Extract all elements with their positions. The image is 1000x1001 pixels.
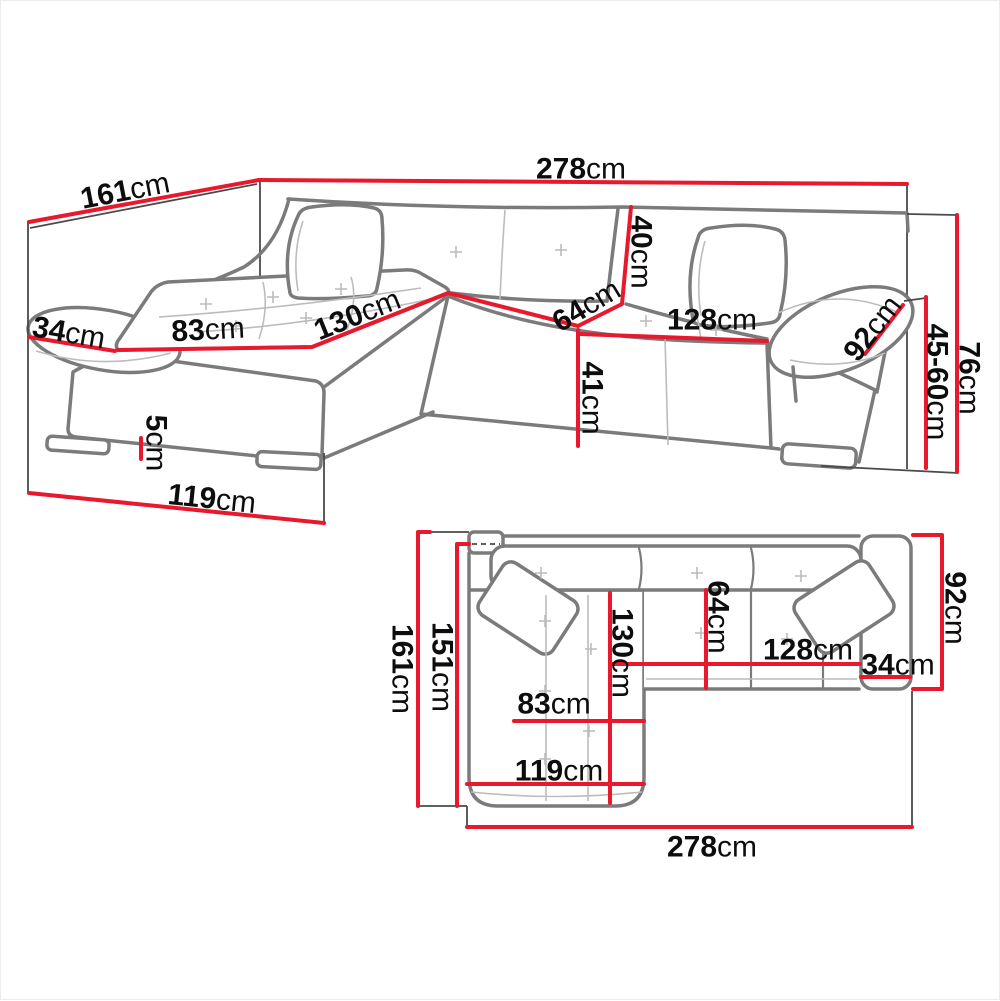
dim-label-seat-height-range: 45-60cm [921, 324, 954, 441]
dim-label-chaise-seat-width: 83cm [171, 312, 246, 349]
dim-label-backrest-height: 40cm [625, 215, 658, 288]
dim-label-seat-depth: 64cm [547, 273, 627, 339]
dim-label-seat-front-height: 41cm [576, 361, 609, 434]
plan-label-chaise-seat-width: 83cm [517, 688, 590, 721]
sofa-dimension-diagram: 278cm 161cm 34cm 83cm 130cm 40cm 64cm 12… [0, 0, 1000, 1000]
plan-label-seat-depth: 64cm [702, 580, 735, 653]
left-backrest-divider [500, 210, 505, 299]
dim-label-leg-height: 5cm [140, 415, 173, 472]
sofa-leg-left [47, 436, 110, 454]
extension-height-bottom [821, 466, 958, 473]
plan-label-chaise-outer-width: 119cm [515, 755, 603, 788]
plan-label-seat-width: 128cm [763, 634, 853, 667]
dim-label-chaise-front-depth: 119cm [166, 478, 257, 520]
extension-height-top [907, 214, 957, 215]
sofa-leg-right [781, 443, 856, 468]
plan-label-chaise-length: 130cm [606, 608, 639, 698]
dim-label-side-depth: 161cm [78, 166, 173, 216]
dim-label-seat-width: 128cm [667, 304, 757, 337]
diagram-canvas: 278cm 161cm 34cm 83cm 130cm 40cm 64cm 12… [1, 1, 1000, 1001]
left-pillow [287, 205, 382, 299]
dim-label-total-height: 76cm [953, 341, 986, 414]
plan-label-total-width: 278cm [667, 831, 757, 864]
plan-label-inner-depth: 151cm [426, 622, 459, 712]
plan-label-body-depth: 92cm [939, 571, 972, 644]
dim-label-total-width: 278cm [536, 153, 626, 186]
sofa-leg-mid [257, 451, 322, 469]
plan-ext-bottom-left [418, 806, 467, 827]
plan-label-armrest-width: 34cm [861, 649, 934, 682]
plan-label-total-depth: 161cm [386, 624, 419, 714]
